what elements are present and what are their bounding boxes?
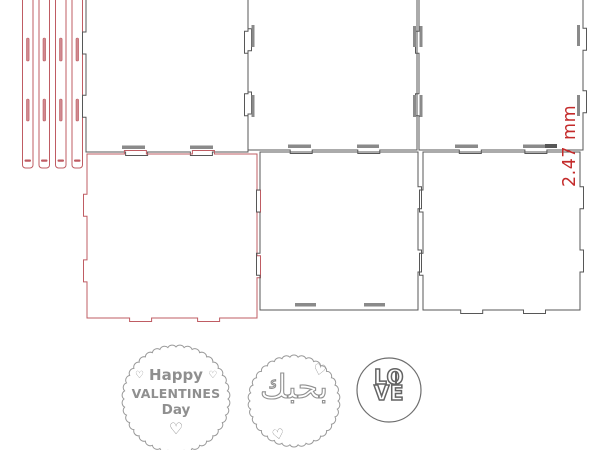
hinge-slit bbox=[60, 38, 63, 61]
engrave-slot bbox=[523, 145, 545, 149]
hinge-slit bbox=[27, 99, 30, 121]
hinge-strip[interactable] bbox=[72, 0, 83, 168]
engrave-slot bbox=[295, 303, 316, 307]
stencil-o-bar bbox=[395, 372, 397, 385]
hinge-slit bbox=[43, 99, 46, 121]
design-canvas: 2.47 mm ♡ Happy ♡ VALENTINES Day ♡ بحبك … bbox=[0, 0, 600, 450]
hinge-slit bbox=[76, 38, 79, 61]
panel-bottom-left[interactable] bbox=[84, 151, 261, 322]
engrave-slot bbox=[357, 145, 379, 149]
arabic-badge[interactable]: بحبك ♡ ♡ bbox=[250, 357, 338, 447]
engrave-slot bbox=[413, 95, 416, 117]
valentine-badge[interactable]: ♡ Happy ♡ VALENTINES Day ♡ bbox=[124, 346, 228, 450]
dimension-label: 2.47 mm bbox=[560, 105, 580, 187]
hinge-slit bbox=[43, 38, 46, 61]
hinge-slit bbox=[27, 38, 30, 61]
love-line2: VE bbox=[357, 386, 421, 402]
panel-top-middle[interactable] bbox=[245, 0, 418, 154]
engrave-slot bbox=[413, 26, 416, 47]
love-badge[interactable]: LO VE bbox=[357, 358, 421, 422]
heart-icon: ♡ bbox=[135, 370, 144, 381]
engrave-slot bbox=[577, 25, 580, 46]
panel-top-left[interactable] bbox=[83, 0, 252, 156]
valentine-happy-text: Happy bbox=[149, 366, 203, 384]
engrave-slot bbox=[252, 95, 255, 117]
hinge-slit bbox=[76, 99, 79, 121]
engrave-slot bbox=[122, 146, 145, 150]
engrave-slot bbox=[455, 145, 478, 149]
hinge-slit bbox=[58, 160, 65, 162]
engrave-slots bbox=[122, 25, 580, 307]
hinge-strip[interactable] bbox=[39, 0, 50, 168]
valentine-valentines-text: VALENTINES bbox=[124, 386, 228, 402]
heart-icon: ♡ bbox=[208, 370, 217, 381]
hinge-strip[interactable] bbox=[56, 0, 67, 168]
hinge-slit bbox=[25, 160, 32, 162]
heart-icon: ♡ bbox=[270, 426, 286, 444]
engrave-slot bbox=[420, 26, 423, 47]
engrave-slot bbox=[190, 146, 213, 150]
engrave-slot bbox=[288, 145, 311, 149]
hinge-slit bbox=[60, 99, 63, 121]
valentine-day-text: Day bbox=[124, 402, 228, 418]
box-panels[interactable] bbox=[83, 0, 587, 322]
hinge-slit bbox=[74, 160, 81, 162]
engrave-slot bbox=[252, 25, 255, 47]
hinge-slit bbox=[41, 160, 48, 162]
panel-bottom-middle[interactable] bbox=[257, 152, 422, 310]
panel-bottom-right[interactable] bbox=[420, 152, 584, 314]
engrave-slot bbox=[364, 303, 385, 307]
engrave-slot bbox=[545, 144, 557, 148]
valentine-line1: ♡ Happy ♡ bbox=[124, 367, 228, 384]
living-hinge-strips[interactable] bbox=[23, 0, 83, 168]
engrave-slot bbox=[420, 95, 423, 117]
heart-icon: ♡ bbox=[124, 420, 228, 438]
hinge-strip[interactable] bbox=[23, 0, 34, 168]
